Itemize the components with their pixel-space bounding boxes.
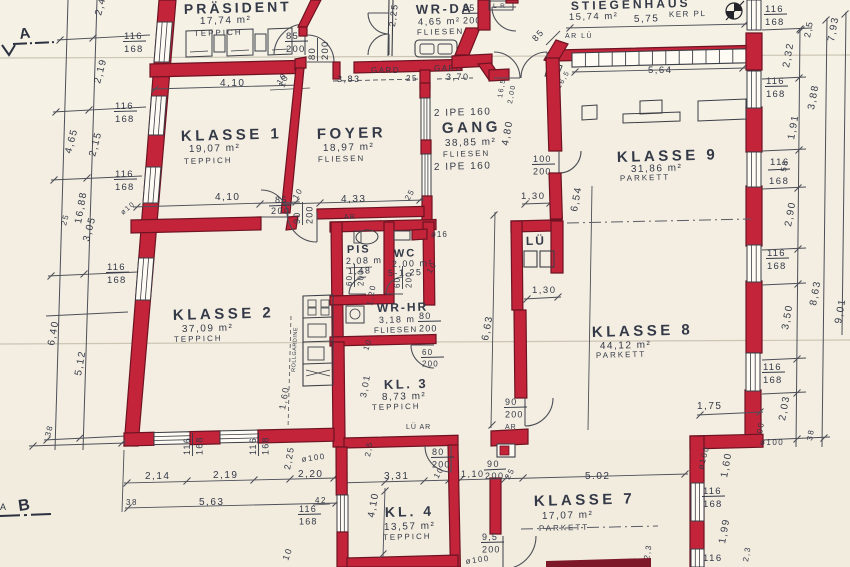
svg-text:17,74 m²: 17,74 m² bbox=[200, 15, 252, 27]
svg-text:A: A bbox=[18, 24, 32, 42]
svg-text:1,10: 1,10 bbox=[461, 469, 485, 479]
svg-text:FLIESEN: FLIESEN bbox=[417, 27, 465, 37]
svg-text:1,30: 1,30 bbox=[521, 191, 546, 202]
svg-text:116: 116 bbox=[115, 101, 134, 112]
svg-text:168: 168 bbox=[765, 17, 784, 28]
svg-text:FLIESEN: FLIESEN bbox=[318, 154, 366, 164]
svg-text:85: 85 bbox=[463, 3, 475, 13]
svg-text:116: 116 bbox=[107, 262, 126, 273]
svg-text:FOYER: FOYER bbox=[317, 124, 387, 143]
svg-text:PARKETT: PARKETT bbox=[596, 350, 647, 360]
svg-text:KLASSE 8: KLASSE 8 bbox=[592, 321, 694, 341]
svg-text:19,07 m²: 19,07 m² bbox=[189, 143, 241, 155]
svg-text:100: 100 bbox=[533, 154, 552, 164]
svg-text:200: 200 bbox=[419, 324, 438, 334]
svg-text:5.02: 5.02 bbox=[585, 471, 610, 482]
svg-text:LÜ: LÜ bbox=[526, 232, 546, 248]
svg-text:60: 60 bbox=[422, 348, 433, 357]
svg-text:200: 200 bbox=[505, 410, 524, 420]
svg-text:5,75: 5,75 bbox=[634, 13, 660, 25]
svg-text:200: 200 bbox=[286, 44, 305, 55]
svg-text:KLASSE 2: KLASSE 2 bbox=[173, 304, 275, 324]
svg-text:2,14: 2,14 bbox=[145, 471, 170, 482]
svg-text:116: 116 bbox=[765, 4, 784, 15]
svg-text:4,10: 4,10 bbox=[215, 192, 240, 203]
svg-text:4,10: 4,10 bbox=[220, 78, 245, 89]
svg-text:85: 85 bbox=[286, 31, 299, 42]
svg-text:B: B bbox=[17, 496, 32, 515]
svg-text:ø16: ø16 bbox=[431, 230, 448, 239]
svg-text:168: 168 bbox=[115, 114, 134, 125]
svg-text:168: 168 bbox=[124, 44, 143, 55]
svg-text:TEPPICH: TEPPICH bbox=[174, 334, 223, 344]
svg-text:116: 116 bbox=[124, 31, 143, 42]
svg-text:LÜ AR: LÜ AR bbox=[406, 423, 431, 431]
svg-text:9,5: 9,5 bbox=[482, 532, 498, 542]
svg-text:38: 38 bbox=[126, 498, 138, 507]
svg-text:200: 200 bbox=[422, 360, 439, 369]
svg-text:15,74 m²: 15,74 m² bbox=[569, 11, 619, 23]
svg-text:TEPPICH: TEPPICH bbox=[372, 402, 421, 412]
svg-text:TEPPICH: TEPPICH bbox=[184, 156, 233, 166]
svg-text:5,64: 5,64 bbox=[648, 65, 673, 76]
svg-text:3,18 m: 3,18 m bbox=[379, 314, 416, 325]
svg-text:80: 80 bbox=[307, 47, 318, 60]
svg-text:168: 168 bbox=[261, 436, 271, 455]
svg-text:18,97 m²: 18,97 m² bbox=[323, 142, 375, 154]
svg-text:5,63: 5,63 bbox=[199, 497, 224, 508]
svg-text:80: 80 bbox=[432, 447, 444, 457]
svg-text:FLIESEN: FLIESEN bbox=[374, 325, 418, 335]
svg-text:60: 60 bbox=[345, 275, 354, 286]
svg-text:168: 168 bbox=[766, 89, 785, 100]
svg-text:168: 168 bbox=[769, 176, 789, 187]
svg-text:3,70: 3,70 bbox=[446, 72, 470, 82]
svg-text:ø100: ø100 bbox=[760, 438, 784, 447]
svg-text:17,07 m²: 17,07 m² bbox=[542, 510, 594, 522]
svg-text:200: 200 bbox=[357, 269, 366, 286]
svg-text:KL. 4: KL. 4 bbox=[385, 503, 435, 520]
svg-text:AR: AR bbox=[344, 214, 356, 221]
svg-text:4,33: 4,33 bbox=[341, 194, 366, 205]
svg-text:25: 25 bbox=[406, 74, 418, 83]
svg-text:200: 200 bbox=[305, 205, 315, 224]
svg-text:PARKETT: PARKETT bbox=[620, 173, 671, 183]
svg-text:90: 90 bbox=[505, 397, 517, 407]
svg-text:2,19: 2,19 bbox=[213, 470, 238, 481]
svg-text:38,85 m²: 38,85 m² bbox=[445, 137, 497, 149]
svg-text:AR LÜ: AR LÜ bbox=[565, 32, 593, 40]
svg-text:TEPPICH: TEPPICH bbox=[383, 532, 432, 542]
svg-text:PIS: PIS bbox=[347, 243, 371, 256]
svg-text:A: A bbox=[0, 502, 7, 512]
svg-text:168: 168 bbox=[115, 182, 134, 193]
svg-text:116: 116 bbox=[703, 486, 722, 497]
svg-text:168: 168 bbox=[703, 499, 722, 510]
svg-text:2 IPE 160: 2 IPE 160 bbox=[434, 106, 492, 118]
svg-text:KL. 3: KL. 3 bbox=[384, 376, 429, 392]
svg-text:116: 116 bbox=[115, 169, 134, 180]
svg-text:KLASSE 7: KLASSE 7 bbox=[534, 490, 636, 510]
svg-text:200: 200 bbox=[485, 471, 505, 481]
svg-text:90: 90 bbox=[487, 459, 500, 469]
svg-text:80: 80 bbox=[419, 311, 431, 321]
svg-text:200: 200 bbox=[320, 41, 331, 60]
svg-text:200: 200 bbox=[482, 545, 501, 555]
svg-text:200: 200 bbox=[405, 271, 414, 288]
svg-text:168: 168 bbox=[763, 375, 782, 386]
svg-text:GANG: GANG bbox=[442, 118, 501, 137]
svg-text:90: 90 bbox=[292, 212, 302, 224]
svg-text:116: 116 bbox=[299, 504, 317, 514]
svg-text:3,31: 3,31 bbox=[384, 471, 409, 482]
svg-text:2 IPE 160: 2 IPE 160 bbox=[434, 160, 492, 172]
svg-text:KER PL: KER PL bbox=[669, 9, 707, 19]
svg-text:200: 200 bbox=[432, 460, 451, 470]
svg-text:116: 116 bbox=[763, 362, 782, 373]
svg-text:168: 168 bbox=[195, 436, 205, 455]
svg-text:2,20: 2,20 bbox=[298, 469, 323, 480]
svg-text:116: 116 bbox=[248, 437, 258, 455]
svg-text:1,30: 1,30 bbox=[532, 285, 557, 296]
svg-text:60: 60 bbox=[393, 277, 402, 288]
svg-text:3,83: 3,83 bbox=[337, 74, 361, 84]
svg-text:GARD: GARD bbox=[371, 66, 400, 75]
svg-text:116: 116 bbox=[703, 553, 723, 564]
svg-text:1,75: 1,75 bbox=[697, 401, 722, 412]
svg-text:2,08 m: 2,08 m bbox=[346, 255, 383, 266]
svg-text:FLIESEN: FLIESEN bbox=[443, 149, 491, 159]
svg-text:168: 168 bbox=[299, 517, 318, 527]
svg-text:168: 168 bbox=[767, 261, 786, 272]
svg-text:168: 168 bbox=[107, 275, 126, 286]
svg-text:116: 116 bbox=[182, 437, 192, 455]
